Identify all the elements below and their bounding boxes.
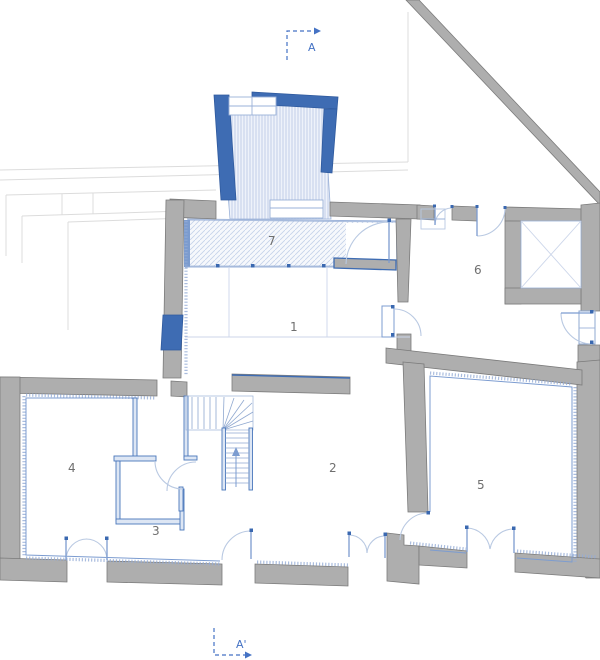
walls <box>0 0 600 586</box>
wall-shaft-bottom <box>505 288 581 304</box>
site-context-lines <box>0 12 408 330</box>
wall-left-vertical <box>163 200 184 378</box>
stair-winder-treads <box>192 397 253 430</box>
wall-diagonal-ne <box>406 0 600 205</box>
staircase <box>186 396 253 490</box>
section-marker-top: A <box>287 28 321 61</box>
section-label-top: A <box>308 41 316 54</box>
partition-room4 <box>133 398 137 458</box>
floor-plan-canvas: 1 2 3 4 5 6 7 A A' <box>0 0 600 660</box>
stair-rail-right <box>249 428 253 490</box>
wall-room6-top-a <box>417 205 434 220</box>
room-label-6: 6 <box>474 263 482 277</box>
wall-room5-left <box>403 362 428 512</box>
bay-lower-window <box>270 200 323 218</box>
door-leaf-stair-hall <box>179 487 183 511</box>
wall-right-lower <box>577 360 600 578</box>
floor-plan-page: 1 2 3 4 5 6 7 A A' <box>0 0 600 660</box>
wall-bottom-b <box>107 561 222 585</box>
room-label-3: 3 <box>152 524 160 538</box>
partition-room4-cap <box>114 456 156 461</box>
right-wall-door <box>561 310 595 344</box>
section-marker-bottom: A' <box>214 628 252 659</box>
wall-bottom-a <box>0 558 67 582</box>
wall-bottom-c <box>255 564 348 586</box>
room-label-4: 4 <box>68 461 76 475</box>
stair-rail-left <box>222 428 226 490</box>
wall-room4-top-a <box>0 377 157 396</box>
stem-window-door <box>382 305 421 337</box>
room-label-1: 1 <box>290 320 298 334</box>
shaft <box>521 221 581 288</box>
wall-room4-top-b <box>171 381 187 397</box>
section-arrow-bottom <box>245 652 252 659</box>
wall-top-mid <box>330 202 420 219</box>
partition-room3-left <box>116 461 120 521</box>
room-label-5: 5 <box>477 478 485 492</box>
wall-stem <box>396 219 411 302</box>
partition-room3-bottom <box>116 519 182 524</box>
upper-bay <box>214 92 338 219</box>
wall-room6-top-b <box>452 206 477 221</box>
section-label-bottom: A' <box>236 638 247 651</box>
stair-flight-treads <box>226 433 250 483</box>
wall-room1-top-blue <box>334 258 396 270</box>
section-arrow-top <box>314 28 321 35</box>
bay-window <box>229 97 276 115</box>
room-label-7: 7 <box>268 234 276 248</box>
room-label-2: 2 <box>329 461 337 475</box>
wall-left-blue-patch <box>161 315 183 350</box>
room-borders <box>26 376 572 562</box>
partition-stair-stub <box>184 456 197 460</box>
wall-right-upper <box>581 203 600 311</box>
wall-bottom-step <box>387 533 419 584</box>
wall-room4-left <box>0 377 20 562</box>
